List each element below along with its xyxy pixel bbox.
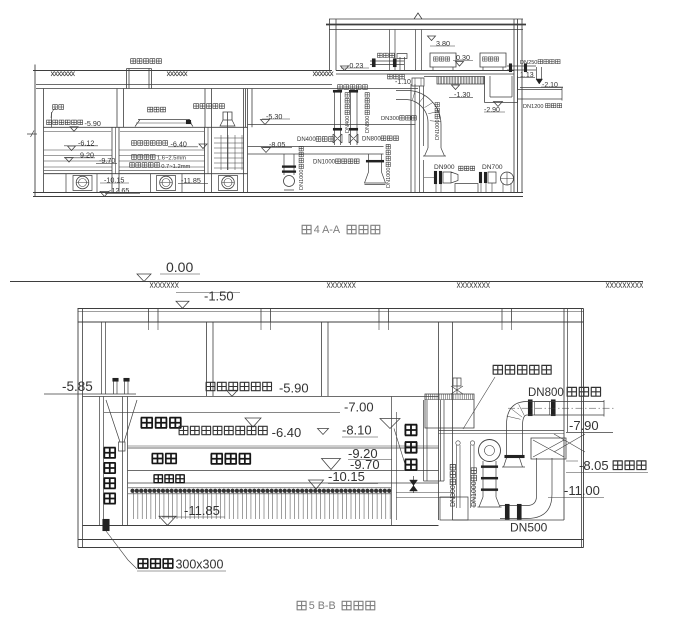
svg-text:1.13: 1.13 [520, 72, 534, 79]
svg-text:3.80: 3.80 [436, 39, 450, 48]
svg-text:-1.10: -1.10 [395, 79, 411, 86]
svg-text:-10.15: -10.15 [104, 176, 124, 185]
svg-text:5 B-B: 5 B-B [309, 600, 336, 612]
svg-text:DN800: DN800 [528, 387, 564, 399]
svg-text:DN1000: DN1000 [386, 167, 392, 188]
svg-text:-7.90: -7.90 [569, 418, 599, 433]
svg-text:-7.00: -7.00 [344, 400, 374, 415]
svg-text:9.20: 9.20 [80, 151, 94, 160]
svg-text:DN1000: DN1000 [299, 169, 305, 190]
svg-text:-11.00: -11.00 [564, 483, 600, 498]
svg-text:-1.30: -1.30 [454, 90, 470, 99]
svg-text:-0.23: -0.23 [347, 61, 363, 70]
svg-text:DN800: DN800 [365, 116, 371, 133]
svg-text:-8.10: -8.10 [342, 423, 372, 438]
svg-text:-9.70: -9.70 [99, 156, 115, 165]
svg-text:DN700: DN700 [482, 164, 503, 171]
svg-text:1.6~2.5mm: 1.6~2.5mm [157, 156, 186, 162]
svg-text:300x300: 300x300 [175, 558, 223, 572]
svg-text:DN1000: DN1000 [471, 481, 478, 507]
svg-text:-1.50: -1.50 [204, 289, 234, 304]
svg-text:-8.05: -8.05 [269, 140, 285, 149]
svg-text:4 A-A: 4 A-A [314, 224, 341, 236]
svg-text:-6.12: -6.12 [78, 139, 94, 148]
svg-text:DN1000: DN1000 [435, 119, 441, 140]
svg-text:DN900: DN900 [434, 164, 455, 171]
svg-text:DN250: DN250 [520, 60, 537, 66]
svg-text:DN1000: DN1000 [313, 160, 336, 166]
svg-text:-5.30: -5.30 [266, 112, 282, 121]
svg-text:0.00: 0.00 [166, 259, 193, 275]
svg-text:DN800: DN800 [362, 136, 381, 142]
svg-text:-11.85: -11.85 [181, 176, 201, 185]
svg-text:-2.90: -2.90 [484, 107, 500, 114]
svg-text:-5.85: -5.85 [62, 379, 93, 394]
svg-text:DN400: DN400 [345, 116, 351, 133]
svg-text:-6.40: -6.40 [170, 139, 186, 148]
svg-text:DN400: DN400 [297, 137, 316, 143]
svg-text:DN500: DN500 [510, 521, 548, 535]
svg-text:DN300: DN300 [450, 485, 457, 507]
svg-text:-8.05: -8.05 [579, 458, 609, 473]
svg-text:-10.15: -10.15 [328, 469, 365, 484]
svg-text:-5.90: -5.90 [84, 119, 100, 128]
svg-text:0.30: 0.30 [456, 53, 470, 62]
svg-text:DN300: DN300 [381, 116, 399, 122]
svg-text:-11.85: -11.85 [184, 503, 220, 518]
svg-text:-5.90: -5.90 [279, 381, 309, 396]
svg-text:DN1200: DN1200 [523, 104, 544, 110]
svg-text:-6.40: -6.40 [272, 425, 302, 440]
svg-text:-12.65: -12.65 [109, 186, 129, 195]
svg-text:-2.10: -2.10 [542, 82, 558, 89]
svg-text:0.7~1.2mm: 0.7~1.2mm [161, 164, 190, 170]
